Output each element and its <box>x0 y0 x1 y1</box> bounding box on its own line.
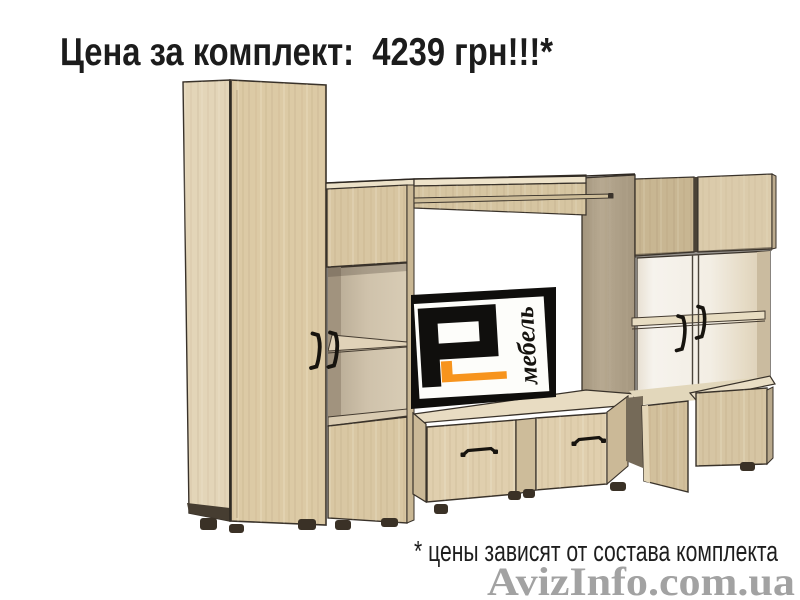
svg-text:AvizInfo.com.ua: AvizInfo.com.ua <box>487 559 795 600</box>
svg-text:Цена за комплект: 4239 грн!!!: Цена за комплект: 4239 грн!!!* <box>60 31 554 74</box>
svg-text:мебель: мебель <box>510 305 544 386</box>
